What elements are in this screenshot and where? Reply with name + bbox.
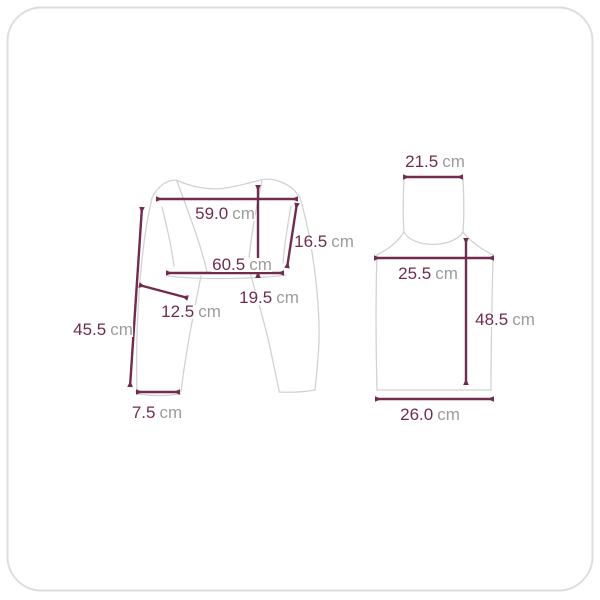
frame-border	[8, 8, 593, 591]
shrug-outline	[137, 179, 319, 395]
tank-neck-right-edge	[463, 178, 464, 232]
tank-neck-left-edge	[403, 178, 404, 232]
size-diagram-canvas: 59.0cm 16.5cm 60.5cm 19.5cm 12.5cm 45.5c…	[0, 0, 600, 600]
shrug-hem	[168, 275, 286, 279]
shrug-right-cuff	[279, 390, 315, 392]
shrug-left-sleeve-outer	[137, 198, 152, 392]
tank-right-side	[491, 255, 493, 390]
shrug-left-front-edge	[177, 181, 207, 272]
tank-left-side	[376, 255, 377, 390]
dim-line-side-length	[287, 203, 297, 268]
shrug-left-sleeve-inner	[181, 276, 201, 392]
tank-left-shoulder	[377, 232, 404, 255]
tank-dimension-lines	[374, 177, 494, 399]
shrug-top-edge	[152, 179, 300, 198]
shrug-right-sleeve-inner	[250, 272, 279, 391]
size-diagram	[0, 0, 600, 600]
tank-right-shoulder	[463, 232, 493, 255]
shrug-right-sleeve-outer	[300, 198, 319, 390]
shrug-right-front-edge	[248, 181, 262, 270]
dim-line-sleeve-width	[139, 285, 188, 298]
shrug-left-cuff	[137, 394, 181, 396]
shrug-left-armhole	[162, 207, 174, 266]
tank-outline	[376, 178, 493, 390]
tank-neckline	[404, 232, 463, 244]
